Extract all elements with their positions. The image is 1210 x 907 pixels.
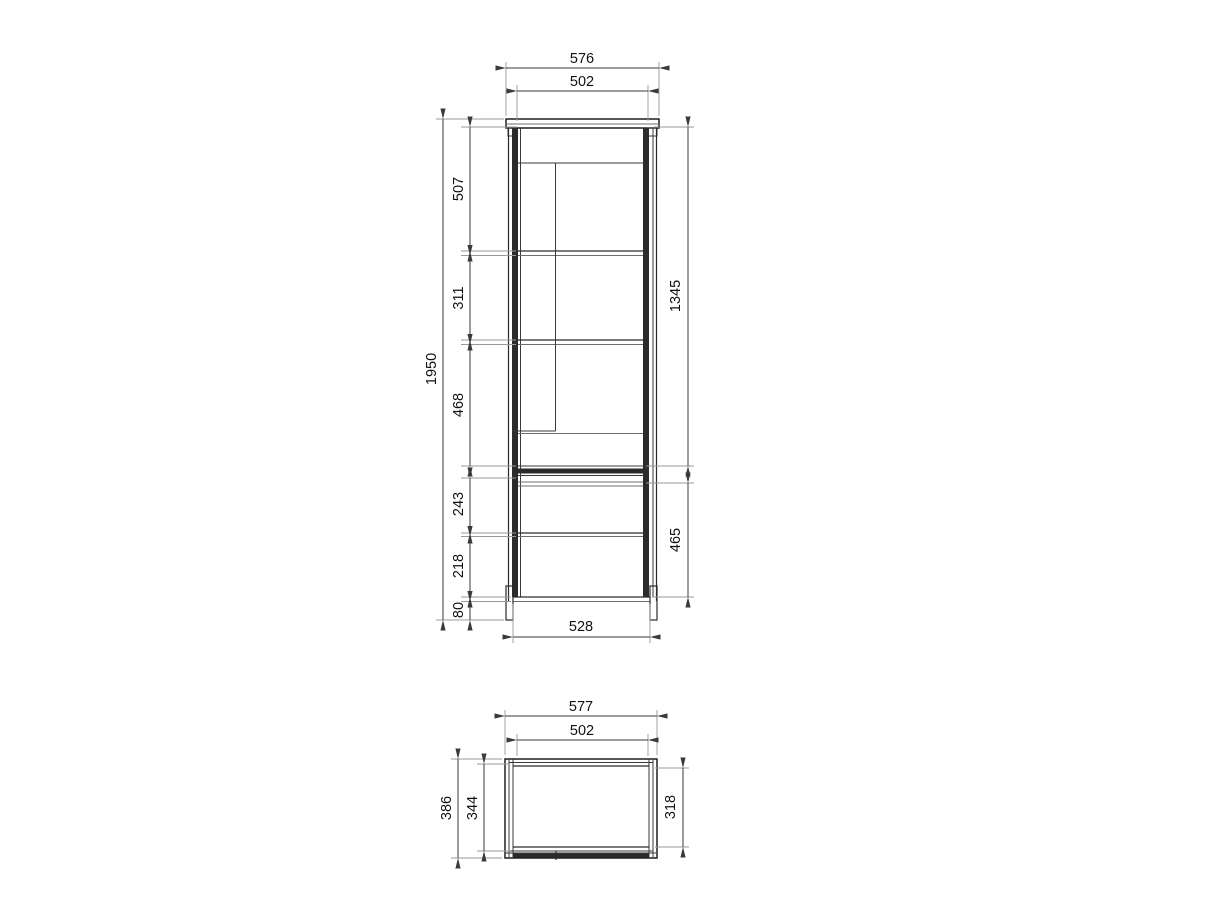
plan-dimensions: 577 502 386 344 318 bbox=[439, 699, 683, 858]
dim-label-opening-depth: 318 bbox=[663, 795, 679, 819]
dim-label-base-width: 528 bbox=[569, 619, 593, 635]
left-door-stile bbox=[512, 128, 518, 597]
dim-label-section-lower: 468 bbox=[451, 393, 467, 417]
cabinet-dimension-drawing: 576 502 1950 507 311 468 243 218 80 1345… bbox=[0, 0, 1210, 907]
dim-label-lower-unit-height: 465 bbox=[668, 528, 684, 552]
dim-label-inner-width: 502 bbox=[570, 74, 594, 90]
dim-label-section-middle: 311 bbox=[451, 286, 467, 309]
dim-label-section-bottom: 218 bbox=[451, 554, 467, 578]
dim-label-overall-height: 1950 bbox=[424, 353, 440, 385]
dim-label-plan-overall-width: 577 bbox=[569, 699, 593, 715]
dim-label-overall-width: 576 bbox=[570, 51, 594, 67]
dim-label-section-drawer: 243 bbox=[451, 492, 467, 516]
left-leg bbox=[506, 586, 513, 620]
cabinet-front-outline bbox=[506, 119, 659, 620]
dim-label-section-top: 507 bbox=[451, 177, 467, 201]
dim-label-inner-depth: 344 bbox=[465, 796, 481, 820]
mid-divider-panel bbox=[518, 469, 643, 474]
dim-label-door-height: 1345 bbox=[668, 280, 684, 312]
top-view: 577 502 386 344 318 bbox=[439, 699, 689, 860]
front-extension-lines bbox=[436, 62, 694, 643]
plan-front-band bbox=[513, 854, 649, 858]
right-door-stile bbox=[643, 128, 649, 597]
plan-outer-frame bbox=[505, 759, 657, 858]
dim-label-plinth-height: 80 bbox=[451, 602, 467, 618]
front-view: 576 502 1950 507 311 468 243 218 80 1345… bbox=[424, 51, 694, 643]
cabinet-plan-outline bbox=[505, 759, 657, 860]
technical-drawing-canvas: 576 502 1950 507 311 468 243 218 80 1345… bbox=[0, 0, 1210, 907]
dim-label-plan-inner-width: 502 bbox=[570, 723, 594, 739]
dim-label-overall-depth: 386 bbox=[439, 796, 455, 820]
